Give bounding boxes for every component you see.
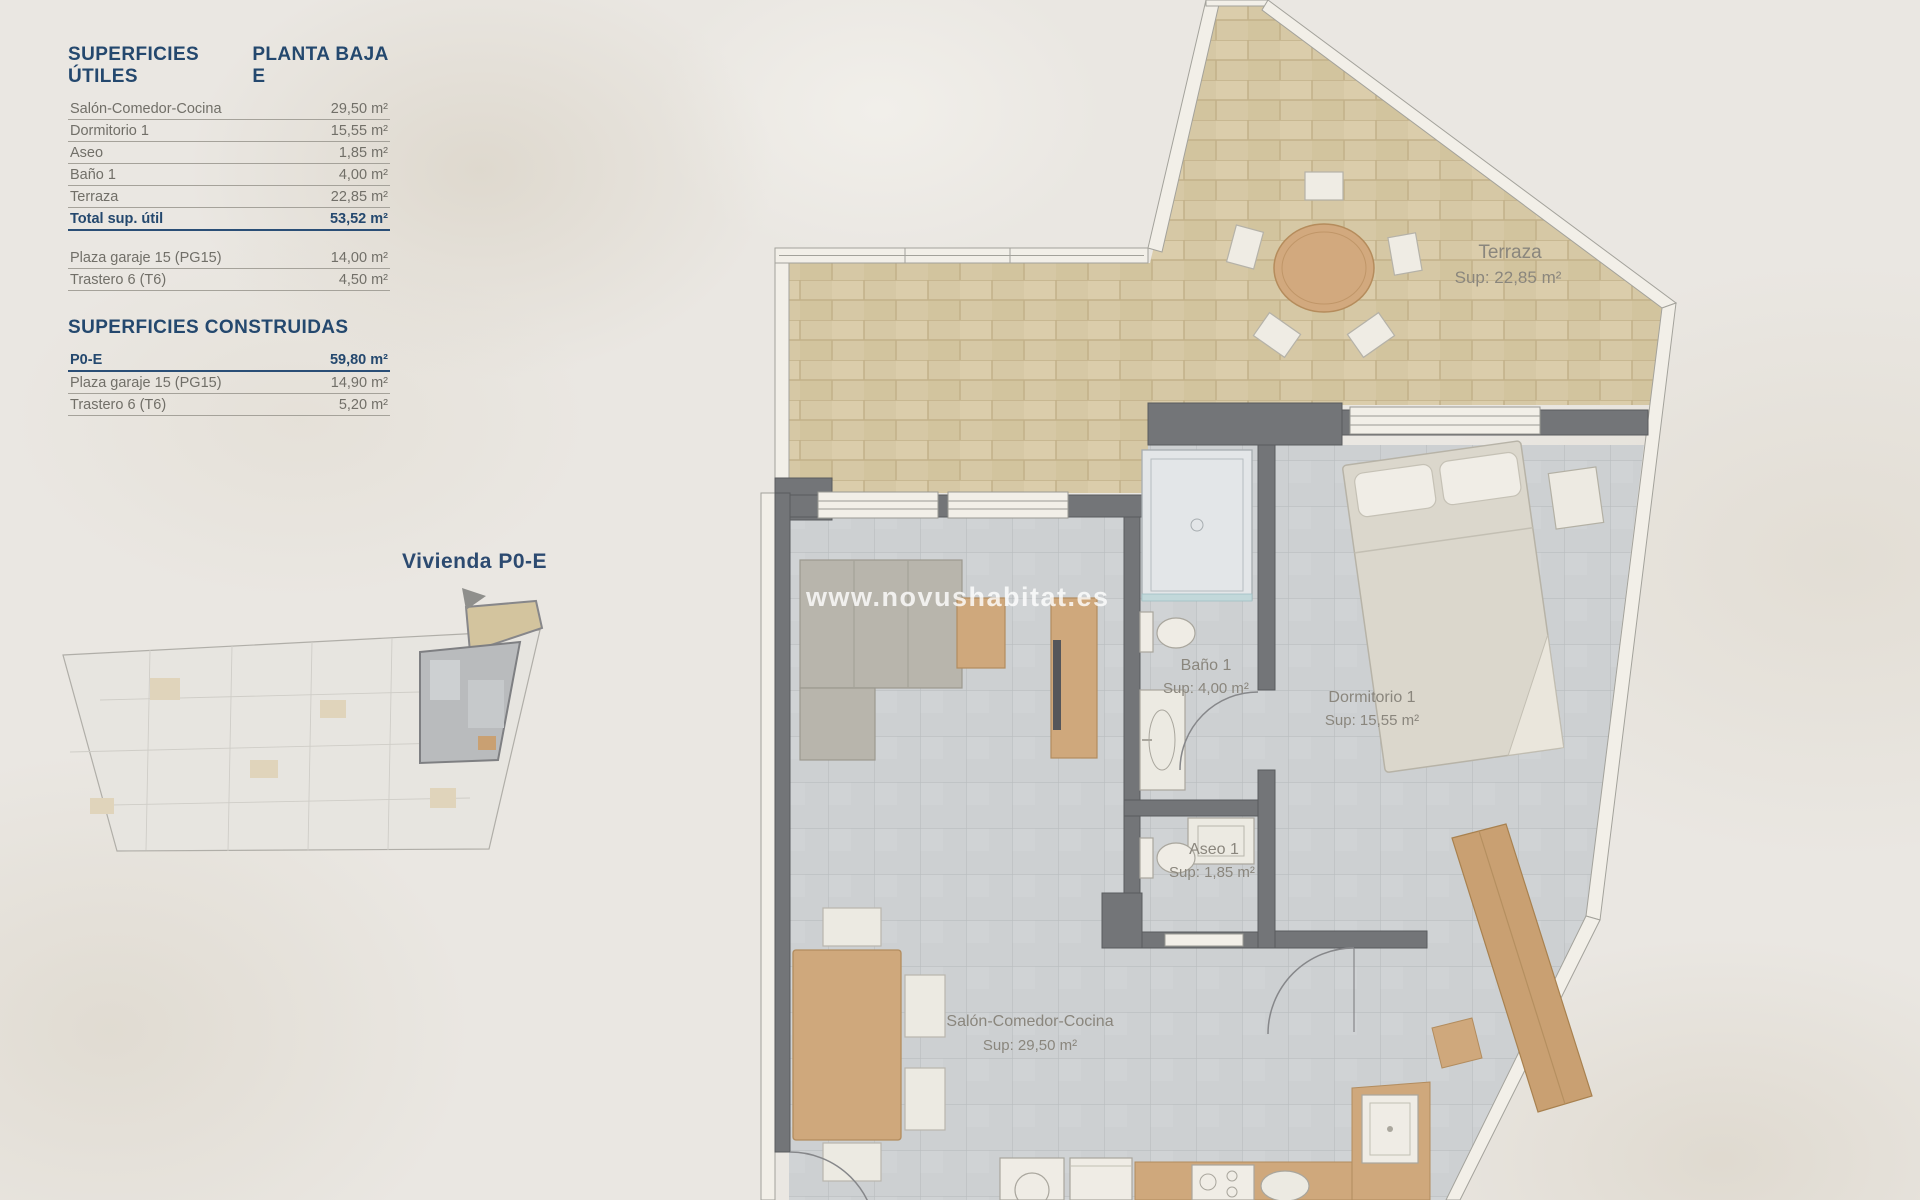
room-sup-aseo: Sup: 1,85 m² xyxy=(1169,864,1255,881)
second-sink xyxy=(1261,1171,1309,1200)
washing-machine xyxy=(1000,1158,1064,1200)
aseo-door-leaf xyxy=(1165,934,1243,946)
nightstand xyxy=(1548,467,1603,529)
bathroom-sink xyxy=(1140,690,1185,790)
keyplan-drawing xyxy=(63,588,542,851)
floorplan-sheet: SUPERFICIES ÚTILES PLANTA BAJA E Salón-C… xyxy=(0,0,1920,1200)
shower xyxy=(1142,450,1252,601)
watermark: www.novushabitat.es xyxy=(806,582,1110,613)
room-label-dormitorio: Dormitorio 1 xyxy=(1328,689,1415,706)
stove xyxy=(1192,1165,1254,1200)
room-sup-salon: Sup: 29,50 m² xyxy=(983,1037,1077,1054)
dining-table xyxy=(793,950,901,1140)
room-sup-terraza: Sup: 22,85 m² xyxy=(1455,268,1562,287)
room-sup-banio: Sup: 4,00 m² xyxy=(1163,680,1249,697)
tv-unit xyxy=(1051,598,1097,758)
dishwasher xyxy=(1070,1158,1132,1200)
room-label-terraza: Terraza xyxy=(1478,242,1542,263)
room-label-salon: Salón-Comedor-Cocina xyxy=(946,1013,1113,1030)
room-label-aseo: Aseo 1 xyxy=(1189,841,1239,858)
kitchen-sink-unit xyxy=(1362,1095,1418,1163)
room-sup-dormitorio: Sup: 15,55 m² xyxy=(1325,712,1419,729)
terrace-table xyxy=(1274,224,1374,312)
room-label-banio: Baño 1 xyxy=(1181,657,1232,674)
